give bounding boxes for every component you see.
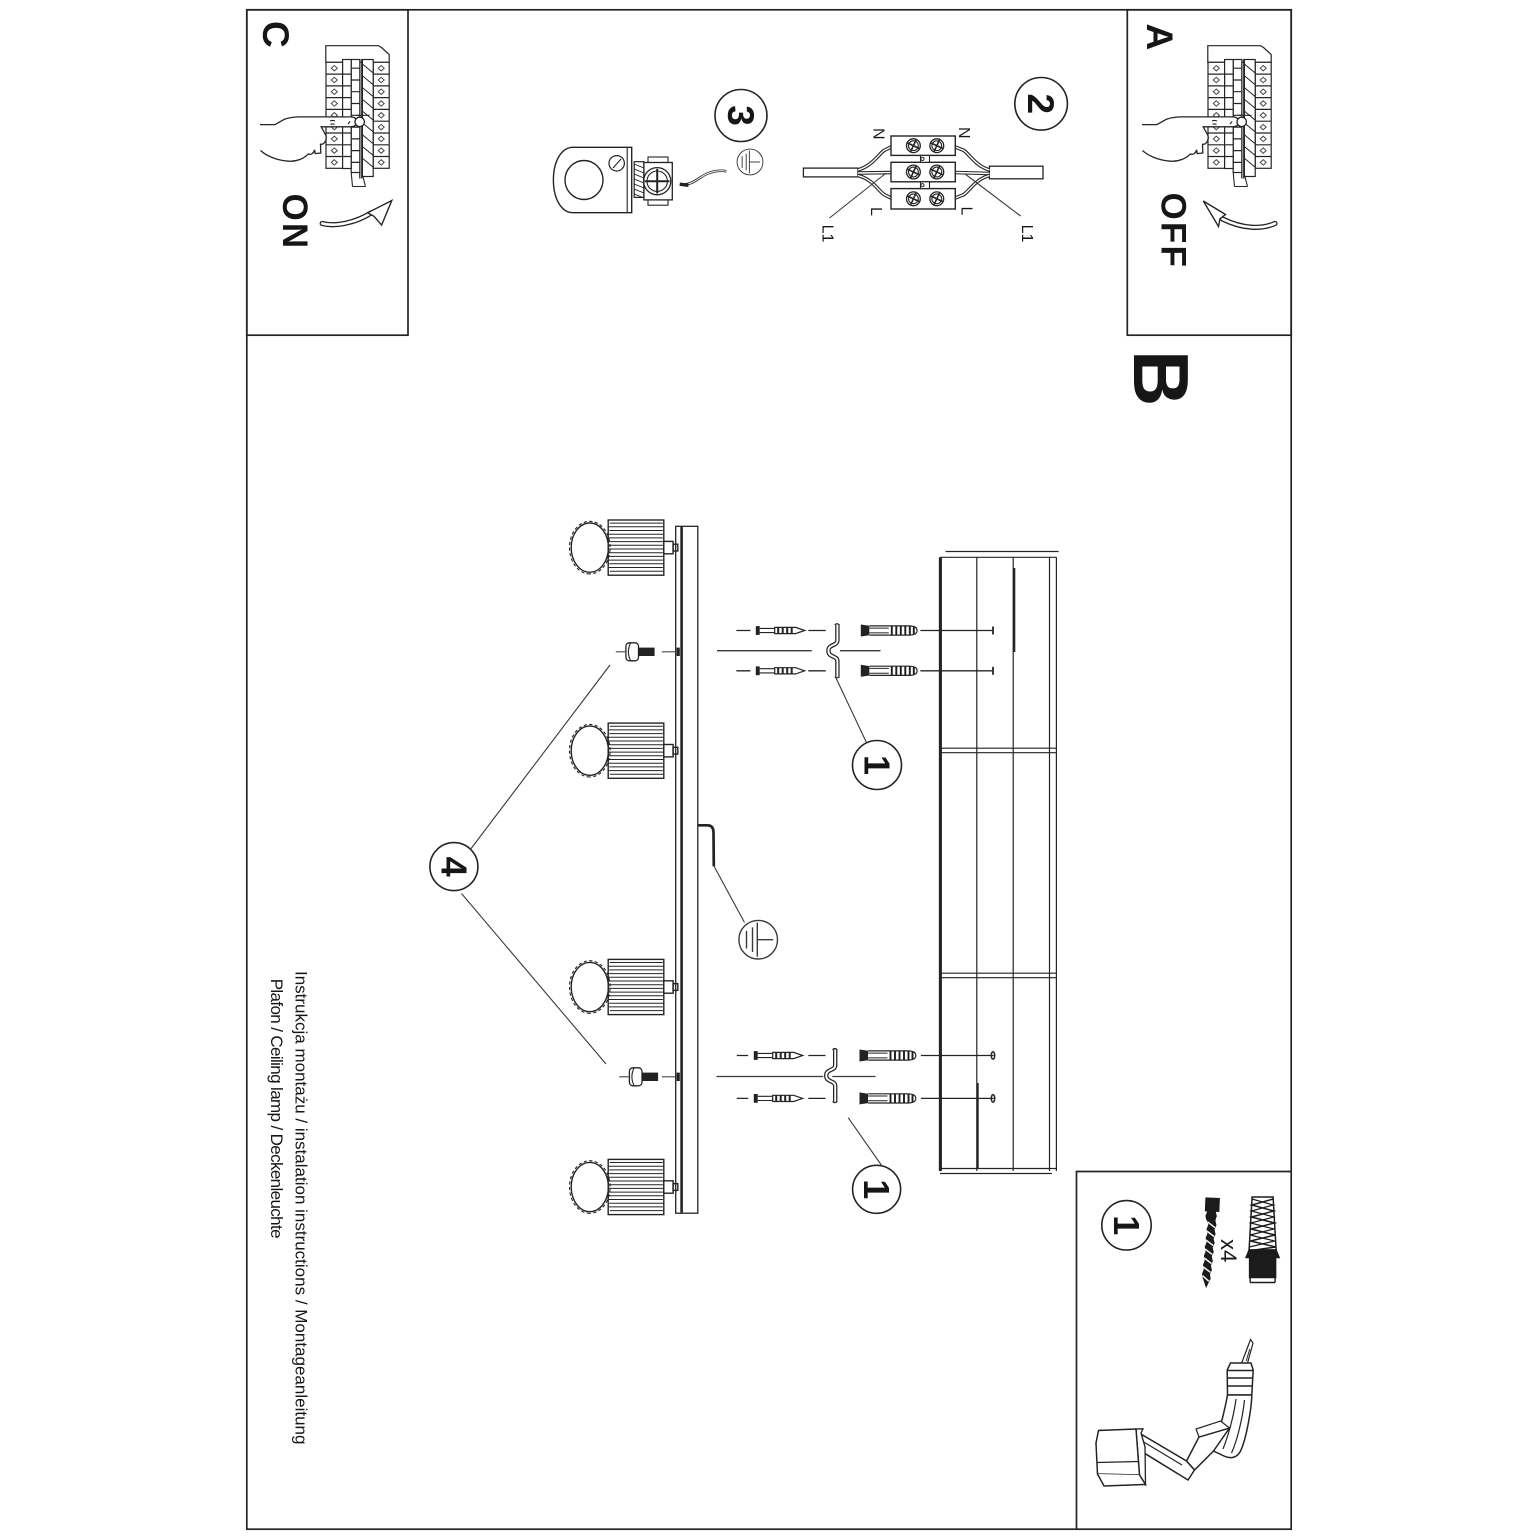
svg-text:L: L xyxy=(958,207,975,216)
svg-text:4: 4 xyxy=(434,857,475,877)
svg-text:ON: ON xyxy=(275,194,314,251)
svg-text:1: 1 xyxy=(1106,1215,1147,1235)
svg-text:Plafon / Ceiling lamp / Decken: Plafon / Ceiling lamp / Deckenleuchte xyxy=(267,979,286,1238)
svg-text:N: N xyxy=(955,127,972,139)
svg-text:N: N xyxy=(870,128,887,140)
svg-text:3: 3 xyxy=(720,105,761,126)
svg-text:x4: x4 xyxy=(1216,1239,1241,1262)
svg-text:A: A xyxy=(1139,24,1180,51)
svg-text:OFF: OFF xyxy=(1154,193,1193,270)
svg-text:L: L xyxy=(867,207,884,216)
svg-text:2: 2 xyxy=(1020,94,1061,115)
svg-text:C: C xyxy=(255,21,296,48)
svg-text:1: 1 xyxy=(856,1179,897,1199)
svg-text:B: B xyxy=(1117,350,1205,406)
svg-text:Instrukcja montażu / instalati: Instrukcja montażu / instalation instruc… xyxy=(292,971,311,1444)
svg-text:L1: L1 xyxy=(819,225,836,243)
svg-text:1: 1 xyxy=(857,755,898,775)
svg-text:L1: L1 xyxy=(1018,225,1035,243)
